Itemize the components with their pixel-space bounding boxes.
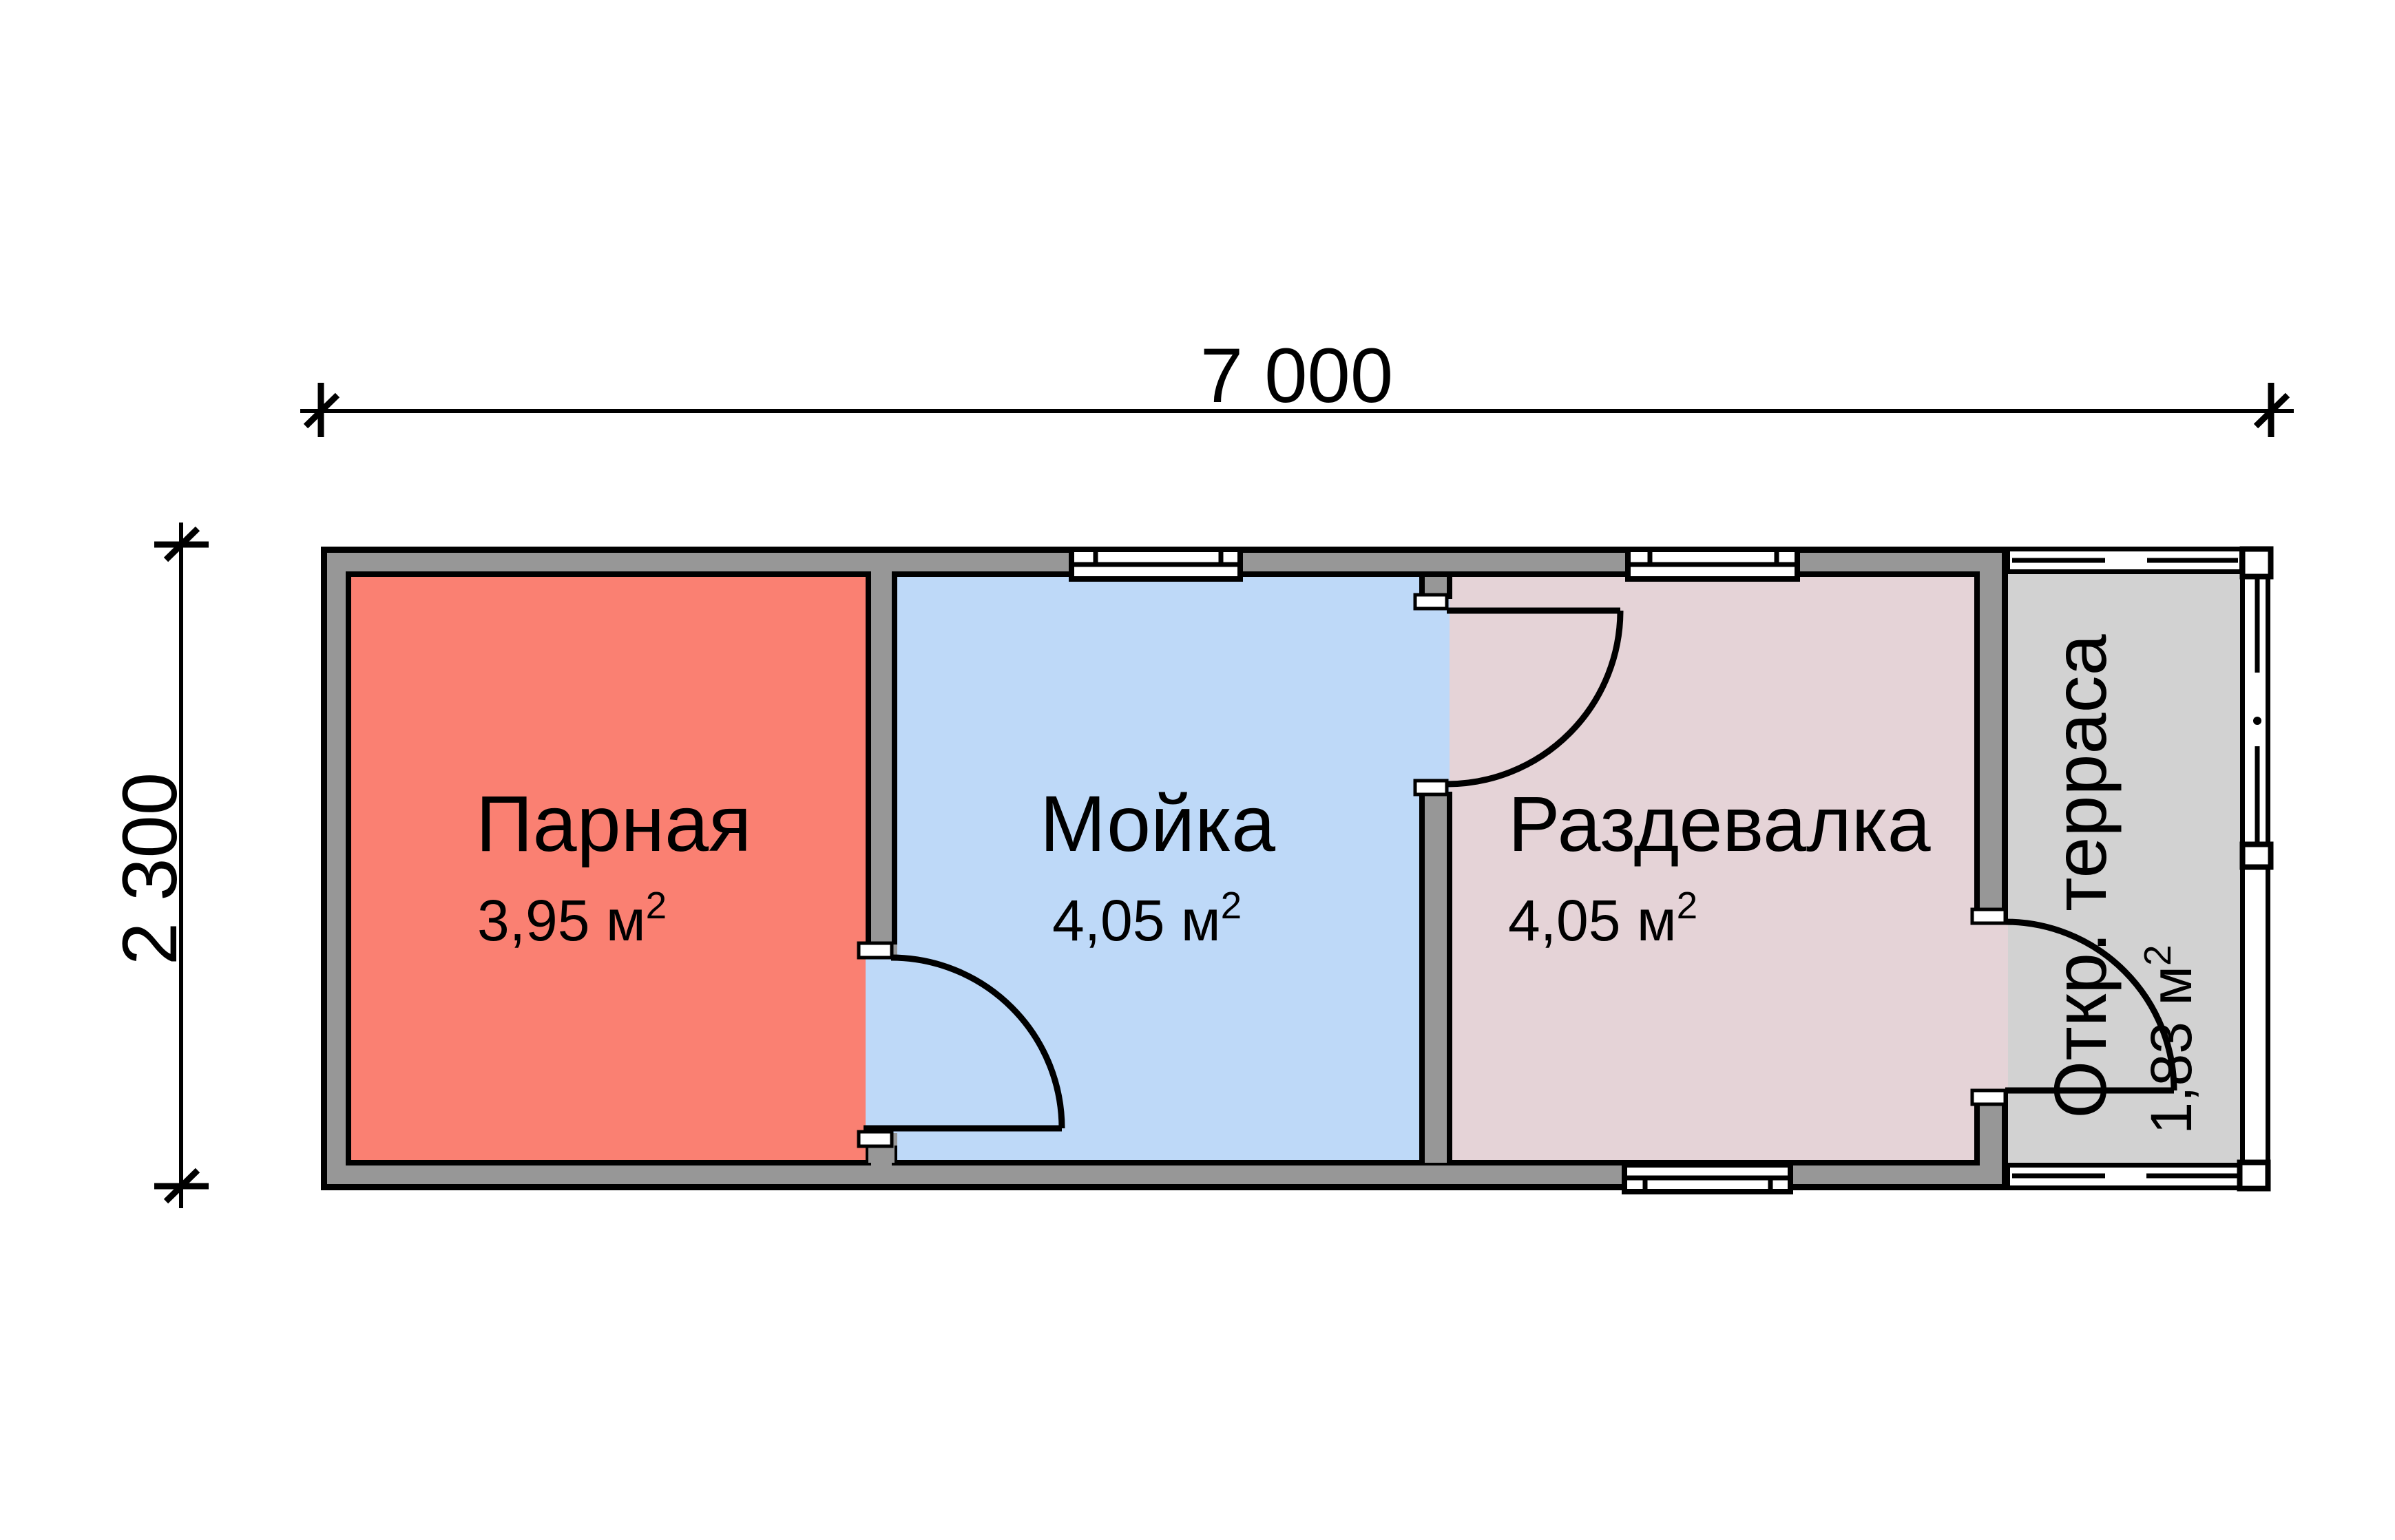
svg-text:3,95 м2: 3,95 м2 <box>477 884 667 953</box>
svg-text:Раздевалка: Раздевалка <box>1508 781 1931 867</box>
svg-text:1,83 м2: 1,83 м2 <box>2136 945 2204 1134</box>
svg-text:Откр. терраса: Откр. терраса <box>2038 633 2122 1118</box>
svg-text:Мойка: Мойка <box>1040 780 1275 868</box>
svg-text:Парная: Парная <box>476 780 751 868</box>
svg-text:7 000: 7 000 <box>1200 333 1393 419</box>
svg-text:4,05 м2: 4,05 м2 <box>1052 884 1242 953</box>
svg-text:2 300: 2 300 <box>107 772 193 965</box>
svg-text:4,05 м2: 4,05 м2 <box>1508 884 1697 953</box>
